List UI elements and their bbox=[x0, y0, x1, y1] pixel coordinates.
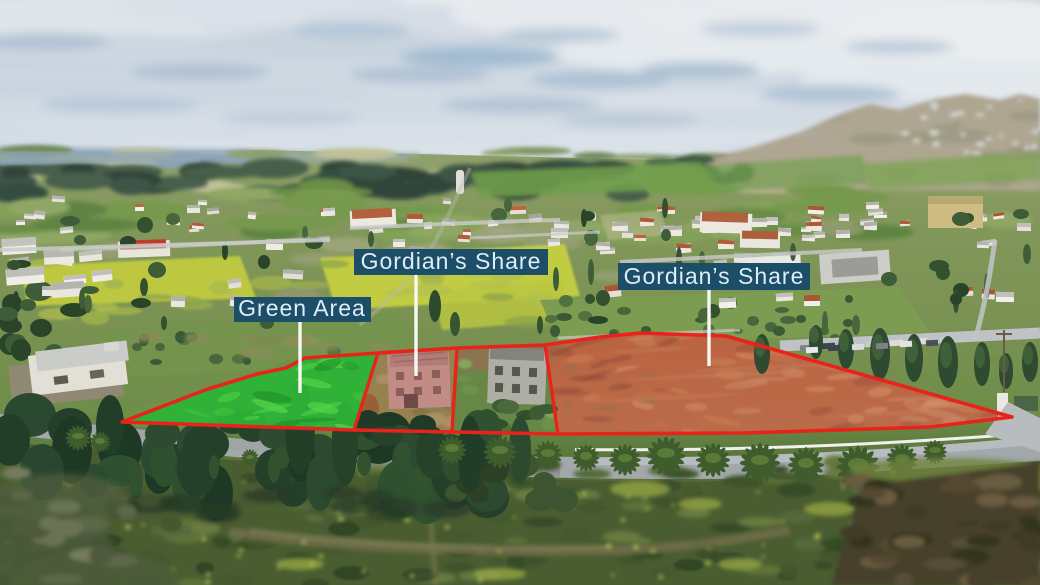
svg-text:Green Area: Green Area bbox=[238, 295, 366, 321]
svg-text:Gordian’s Share: Gordian’s Share bbox=[361, 248, 542, 274]
svg-text:Gordian’s Share: Gordian’s Share bbox=[624, 263, 805, 289]
